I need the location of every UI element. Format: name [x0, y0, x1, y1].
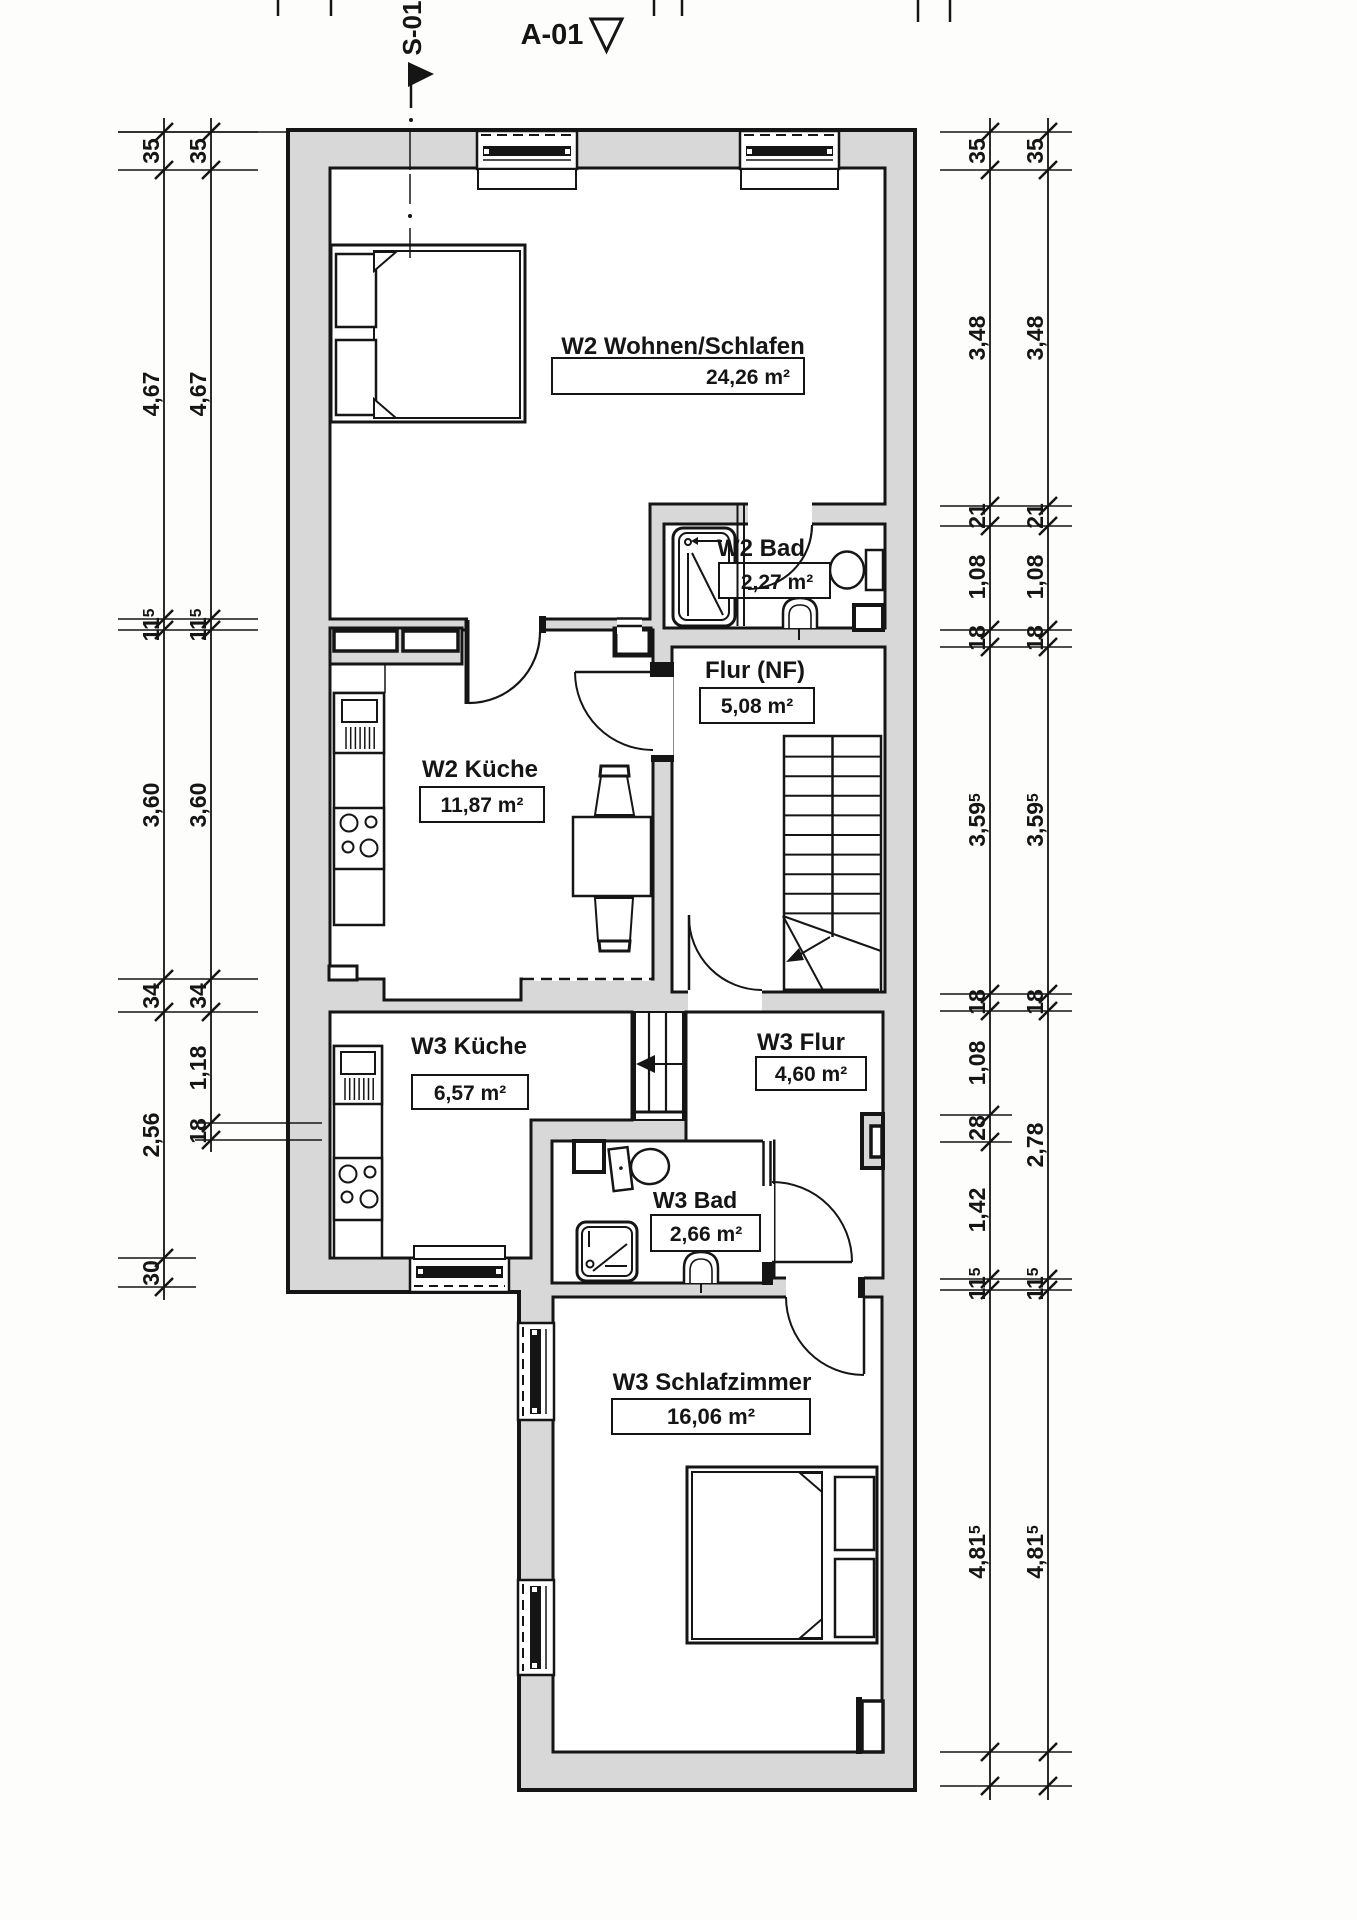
svg-text:W2 Wohnen/Schlafen: W2 Wohnen/Schlafen: [561, 333, 805, 360]
svg-text:35: 35: [964, 138, 990, 164]
svg-text:W3 Bad: W3 Bad: [653, 1187, 737, 1213]
svg-text:W3 Küche: W3 Küche: [411, 1033, 527, 1060]
svg-text:4,67: 4,67: [185, 372, 211, 417]
svg-text:16,06 m²: 16,06 m²: [667, 1404, 755, 1429]
svg-text:2,66 m²: 2,66 m²: [670, 1223, 742, 1246]
svg-text:35: 35: [1022, 138, 1048, 164]
svg-text:24,26 m²: 24,26 m²: [706, 366, 790, 389]
svg-text:4,67: 4,67: [138, 372, 164, 417]
svg-text:S-01: S-01: [397, 1, 427, 56]
svg-text:5,08 m²: 5,08 m²: [721, 695, 793, 718]
svg-text:1,08: 1,08: [1022, 554, 1048, 599]
svg-text:1,42: 1,42: [964, 1188, 990, 1233]
svg-text:11,87 m²: 11,87 m²: [441, 794, 524, 817]
svg-text:3,48: 3,48: [964, 315, 990, 360]
svg-text:2,78: 2,78: [1022, 1122, 1048, 1167]
svg-text:21: 21: [964, 503, 990, 529]
svg-text:30: 30: [138, 1260, 164, 1286]
svg-text:28: 28: [964, 1115, 990, 1141]
svg-text:W3 Schlafzimmer: W3 Schlafzimmer: [613, 1369, 812, 1396]
svg-text:W2 Bad: W2 Bad: [717, 535, 805, 562]
svg-text:A-01: A-01: [521, 19, 584, 51]
svg-text:1,08: 1,08: [964, 554, 990, 599]
svg-text:3,60: 3,60: [185, 783, 211, 828]
svg-text:W2 Küche: W2 Küche: [422, 756, 538, 783]
svg-text:3,48: 3,48: [1022, 315, 1048, 360]
svg-text:3,60: 3,60: [138, 783, 164, 828]
svg-text:34: 34: [185, 983, 211, 1009]
svg-text:Flur (NF): Flur (NF): [705, 657, 805, 684]
svg-text:6,57 m²: 6,57 m²: [434, 1082, 506, 1105]
svg-text:4,60 m²: 4,60 m²: [775, 1063, 847, 1086]
svg-text:34: 34: [138, 983, 164, 1009]
svg-text:W3 Flur: W3 Flur: [757, 1029, 845, 1056]
svg-text:1,08: 1,08: [964, 1040, 990, 1085]
svg-text:2,56: 2,56: [138, 1113, 164, 1158]
svg-text:35: 35: [185, 138, 211, 164]
svg-text:21: 21: [1022, 503, 1048, 529]
svg-text:35: 35: [138, 138, 164, 164]
svg-text:1,18: 1,18: [185, 1045, 211, 1090]
